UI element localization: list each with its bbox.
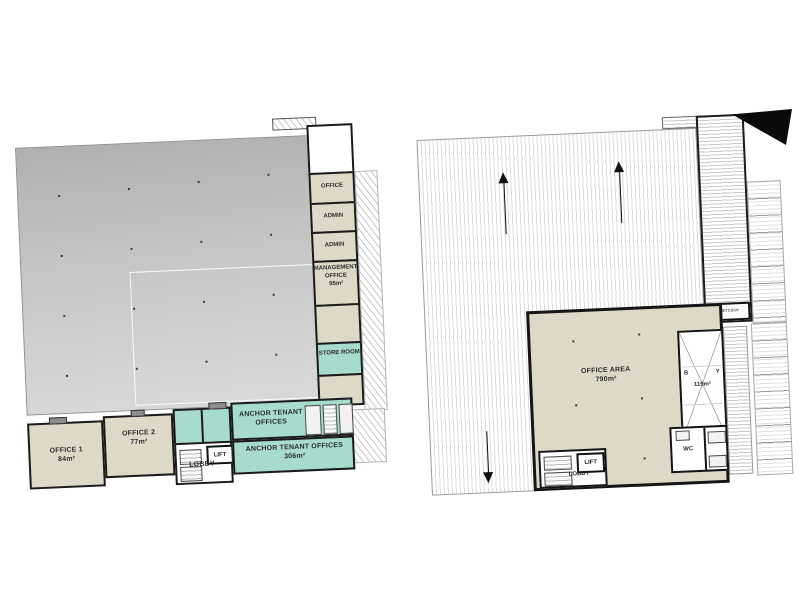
- balcony-letters: B Y: [684, 369, 720, 378]
- wc-label: WC: [672, 446, 704, 455]
- column-dot: [66, 375, 68, 377]
- room-balcony: B Y 119m²: [677, 329, 728, 439]
- mezzanine-outline: [130, 264, 330, 406]
- wc-fixture: [709, 455, 728, 468]
- column-dot: [644, 457, 646, 459]
- office-2-label: OFFICE 2 77m²: [103, 427, 174, 448]
- wc-fixture: [707, 431, 726, 444]
- external-stair-hatch: [751, 322, 794, 475]
- column-dot: [638, 333, 640, 335]
- column-dot: [63, 315, 65, 317]
- office-1-label: OFFICE 1 84m²: [28, 444, 105, 465]
- room-store-room: [316, 341, 363, 377]
- room-unlabeled: [314, 303, 362, 345]
- room-wc: WC: [669, 425, 729, 473]
- wall-divider: [201, 410, 204, 442]
- lift-label: LIFT: [214, 451, 227, 458]
- door-mark: [49, 417, 67, 425]
- column-dot: [270, 234, 272, 236]
- column-dot: [273, 294, 275, 296]
- wc-fixture: [675, 430, 689, 441]
- door-mark: [208, 402, 226, 410]
- column-dot: [275, 354, 277, 356]
- ground-floor-plan: LIFT OFFICE 1 84m² OFFICE 2 77m² LOBBY A…: [0, 108, 398, 500]
- wc-cubicle-fixture: [338, 403, 353, 434]
- column-dot: [572, 340, 574, 342]
- column-dot: [575, 404, 577, 406]
- column-dot: [198, 181, 200, 183]
- lift-label: LIFT: [584, 459, 597, 466]
- stair-fixture: [543, 456, 572, 471]
- column-dot: [128, 188, 130, 190]
- floorplan-canvas: LIFT OFFICE 1 84m² OFFICE 2 77m² LOBBY A…: [0, 0, 800, 600]
- column-dot: [130, 248, 132, 250]
- first-floor-plan: staircase OFFICE AREA 790m²: [410, 104, 799, 512]
- column-dot: [133, 308, 135, 310]
- lobby-first-label: LOBBY: [555, 470, 603, 480]
- column-dot: [136, 368, 138, 370]
- column-dot: [58, 195, 60, 197]
- wc-cubicle-fixture: [323, 404, 338, 435]
- column-dot: [61, 255, 63, 257]
- stair-strip: [696, 114, 753, 324]
- external-stair-hatch: [747, 180, 787, 323]
- column-dot: [200, 241, 202, 243]
- column-dot: [267, 174, 269, 176]
- warehouse-area: [15, 135, 322, 416]
- door-mark: [131, 409, 145, 417]
- utility-rooms: [173, 407, 233, 445]
- corner-room: [306, 123, 354, 175]
- column-dot: [203, 301, 205, 303]
- management-office-label: MANAGEMENT OFFICE 95m²: [309, 264, 362, 290]
- column-dot: [205, 361, 207, 363]
- anchor-tenant-offices-label: ANCHOR TENANT OFFICES: [235, 407, 308, 428]
- room-lobby-first: LIFT LOBBY: [538, 448, 608, 489]
- column-dot: [641, 397, 643, 399]
